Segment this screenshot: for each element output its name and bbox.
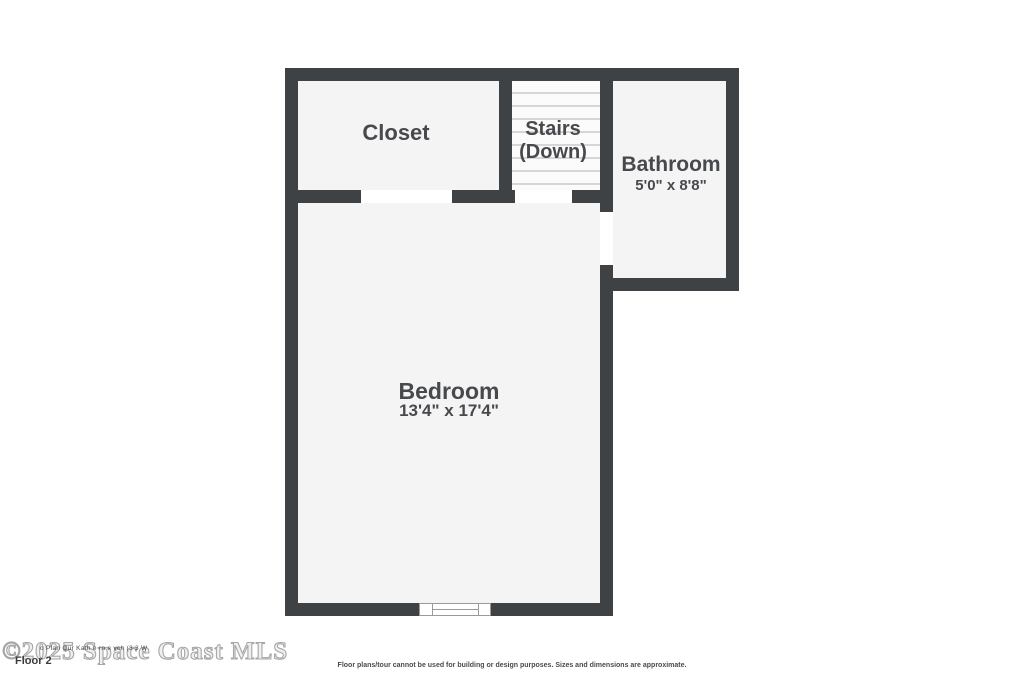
disclaimer-text: Floor plans/tour cannot be used for buil… bbox=[338, 662, 687, 669]
wall-top bbox=[285, 68, 739, 81]
door-opening-closet bbox=[361, 190, 452, 203]
floor-plan-page: Closet Stairs (Down) Bathroom 5'0" x 8'8… bbox=[0, 0, 1024, 683]
wall-bathroom-bottom bbox=[600, 278, 739, 291]
wall-bathroom-right bbox=[726, 68, 739, 291]
wall-left bbox=[285, 68, 298, 616]
stairs-label-line2: (Down) bbox=[519, 141, 587, 164]
stairs-label-line1: Stairs bbox=[519, 118, 587, 141]
closet-label: Closet bbox=[362, 120, 429, 146]
door-opening-bathroom bbox=[600, 212, 613, 265]
floor-number-label: Floor 2 bbox=[15, 655, 52, 667]
bathroom-dimensions: 5'0" x 8'8" bbox=[635, 177, 706, 195]
bedroom-dimensions: 13'4" x 17'4" bbox=[399, 401, 499, 421]
door-opening-stairs bbox=[515, 190, 572, 203]
wall-central-vertical bbox=[600, 81, 613, 616]
window bbox=[419, 603, 491, 616]
window-pane bbox=[432, 604, 479, 615]
bathroom-label: Bathroom bbox=[621, 153, 720, 177]
wall-closet-stairs-divider bbox=[499, 81, 512, 203]
fine-print-illegible: o Plan Qur Kath e rn e ych (3 3 W bbox=[40, 645, 147, 652]
window-midline bbox=[433, 609, 478, 610]
stairs-label: Stairs (Down) bbox=[519, 118, 587, 164]
